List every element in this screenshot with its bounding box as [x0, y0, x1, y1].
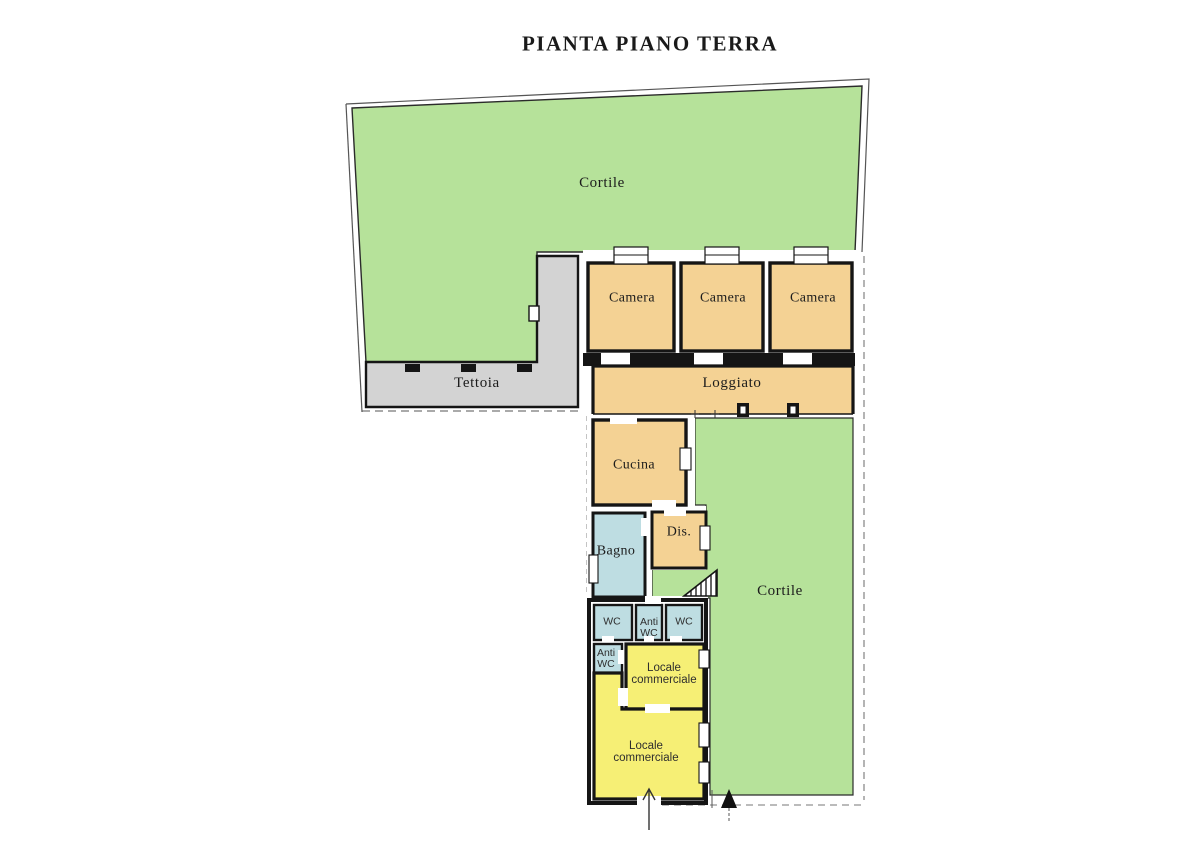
- entrance-gap-top: [645, 596, 661, 604]
- locale-1-door-gap-bottom: [645, 704, 670, 713]
- room-label-tettoia: Tettoia: [454, 376, 500, 392]
- room-label-camera-2: Camera: [700, 292, 746, 307]
- camera-1-room: [588, 263, 674, 351]
- window-icon-dis: [700, 526, 710, 550]
- room-label-anti-wc-1: Anti WC: [634, 617, 664, 639]
- room-label-loggiato: Loggiato: [703, 376, 762, 392]
- room-label-wc-1: WC: [603, 616, 621, 627]
- room-label-locale-1: Locale commerciale: [618, 662, 710, 686]
- room-label-cortile-top: Cortile: [579, 176, 625, 192]
- window-icon-cucina: [680, 448, 691, 470]
- cucina-door-gap: [610, 416, 637, 424]
- tettoia-pillar-notch: [529, 306, 539, 321]
- room-label-locale-2: Locale commerciale: [600, 740, 692, 764]
- room-label-cucina: Cucina: [613, 459, 655, 474]
- floor-plan-drawing: [0, 0, 1200, 848]
- room-label-wc-2: WC: [675, 616, 693, 627]
- dis-door-gap: [664, 508, 686, 516]
- cucina-door-gap-bottom: [652, 500, 676, 509]
- tettoia-post-icon: [517, 364, 532, 372]
- room-label-camera-1: Camera: [609, 292, 655, 307]
- room-label-dis: Dis.: [667, 526, 692, 541]
- room-label-bagno: Bagno: [597, 545, 636, 560]
- room-label-camera-3: Camera: [790, 292, 836, 307]
- window-icons-bedrooms: [614, 247, 828, 264]
- room-label-anti-wc-2: Anti WC: [591, 648, 621, 670]
- tettoia-post-icon: [405, 364, 420, 372]
- floor-plan-page: PIANTA PIANO TERRA: [0, 0, 1200, 848]
- camera-2-room: [681, 263, 763, 351]
- camera-3-room: [770, 263, 852, 351]
- bagno-door-gap: [641, 518, 650, 536]
- tettoia-post-icon: [461, 364, 476, 372]
- room-label-cortile-right: Cortile: [757, 584, 803, 600]
- locale-1-door-gap-left: [618, 688, 628, 706]
